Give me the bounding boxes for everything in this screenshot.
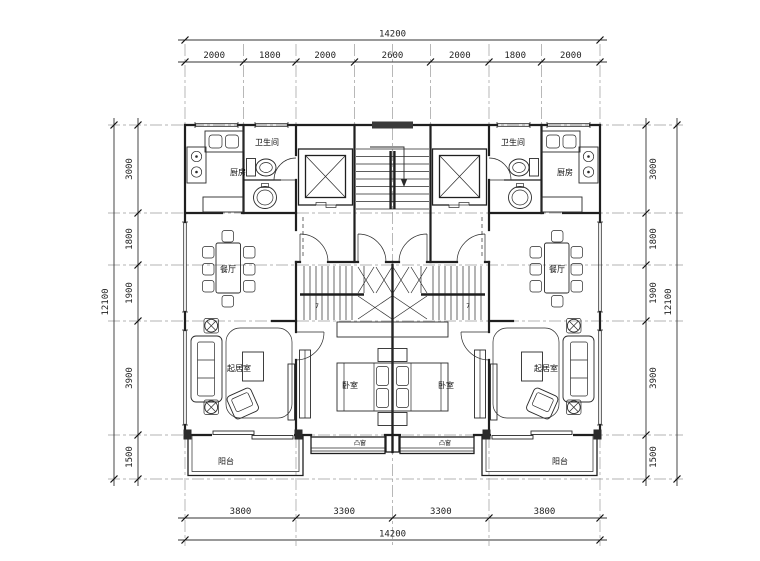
stair-railing-hatch <box>337 322 393 337</box>
top-dim-label-5: 1800 <box>504 51 526 61</box>
top-total-dim-label: 14200 <box>379 30 406 40</box>
bottom-dim-label-3: 3800 <box>534 507 556 517</box>
right-dim-label-2: 1900 <box>649 282 659 304</box>
room-label-dining-right: 餐厅 <box>549 265 565 274</box>
bottom-dim-label-1: 3300 <box>333 507 355 517</box>
left-dim-label-3: 3900 <box>125 367 135 389</box>
room-label-bedroom-left: 卧室 <box>342 380 358 390</box>
stair-step-count-left: 7 <box>315 303 319 310</box>
stair-direction-arrow-icon <box>370 147 407 187</box>
room-label-kitchen-right: 厨房 <box>557 167 573 177</box>
right-dim-label-0: 3000 <box>649 158 659 180</box>
top-dim-label-6: 2000 <box>560 51 582 61</box>
right-dim-label-4: 1500 <box>649 446 659 468</box>
room-label-bedroom-right: 卧室 <box>438 380 454 390</box>
room-label-living-left: 起居室 <box>227 363 251 373</box>
floorplan-drawing: 14200 2000 1800 2000 2600 2000 1800 2000… <box>0 0 760 561</box>
room-label-balcony-right: 阳台 <box>552 456 568 466</box>
left-dim-label-2: 1900 <box>125 282 135 304</box>
room-label-dining-left: 餐厅 <box>220 265 236 274</box>
room-label-living-right: 起居室 <box>534 363 558 373</box>
top-dim-label-2: 2000 <box>314 51 336 61</box>
right-dim-label-3: 3900 <box>649 367 659 389</box>
room-label-balcony-left: 阳台 <box>218 456 234 466</box>
left-unit-plan <box>182 122 393 476</box>
room-label-kitchen-left: 厨房 <box>230 167 246 177</box>
top-dim-label-1: 1800 <box>259 51 281 61</box>
bottom-dim-label-2: 3300 <box>430 507 452 517</box>
left-dim-label-1: 1800 <box>125 228 135 250</box>
floorplan-canvas: 14200 2000 1800 2000 2600 2000 1800 2000… <box>0 0 760 561</box>
top-dim-label-0: 2000 <box>203 51 225 61</box>
room-label-baywindow-left: 凸窗 <box>354 439 366 447</box>
room-label-baywindow-right: 凸窗 <box>439 439 451 447</box>
dimension-left: 3000 1800 1900 3900 1500 12100 <box>101 118 142 486</box>
left-dim-label-4: 1500 <box>125 446 135 468</box>
bottom-total-dim-label: 14200 <box>379 530 406 540</box>
room-label-bathroom-right: 卫生间 <box>501 137 525 147</box>
bottom-dim-label-0: 3800 <box>230 507 252 517</box>
top-dim-label-3: 2600 <box>382 51 404 61</box>
left-total-dim-label: 12100 <box>101 288 111 315</box>
room-label-bathroom-left: 卫生间 <box>255 137 279 147</box>
right-total-dim-label: 12100 <box>664 288 674 315</box>
left-dim-label-0: 3000 <box>125 158 135 180</box>
dimension-right: 3000 1800 1900 3900 1500 12100 <box>643 118 681 486</box>
stair-step-count-right: 7 <box>466 303 470 310</box>
right-dim-label-1: 1800 <box>649 228 659 250</box>
top-dim-label-4: 2000 <box>449 51 471 61</box>
